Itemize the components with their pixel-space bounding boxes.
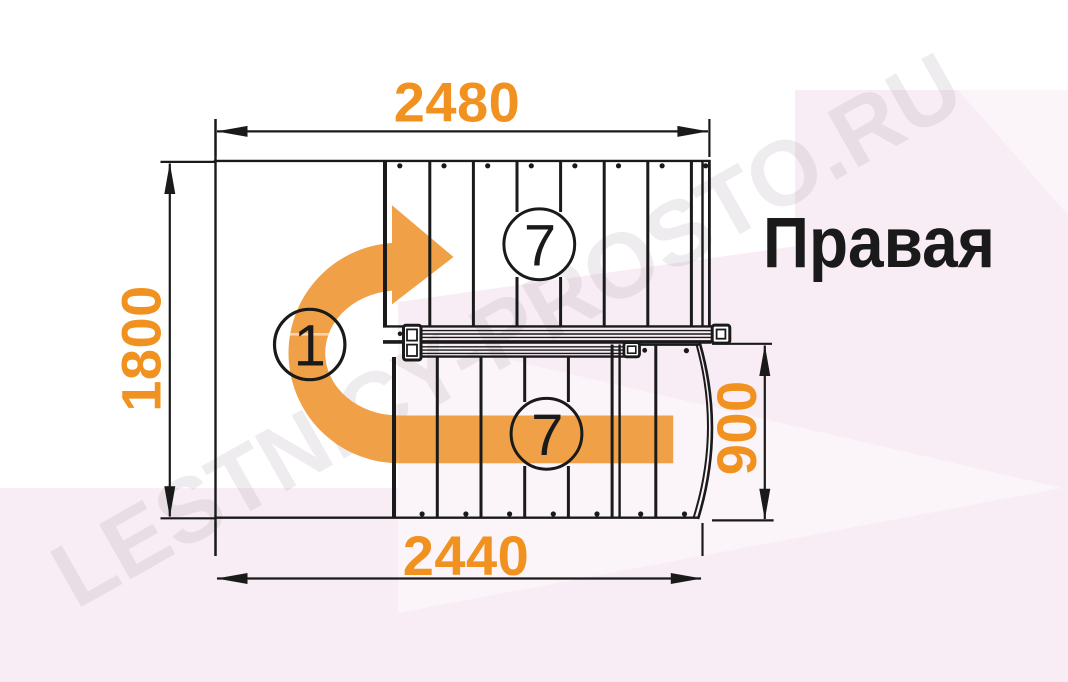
svg-text:1: 1 (294, 314, 326, 379)
svg-text:900: 900 (705, 380, 768, 475)
svg-text:1800: 1800 (110, 285, 173, 412)
svg-text:Правая: Правая (763, 204, 995, 283)
svg-text:2440: 2440 (403, 524, 530, 587)
svg-text:7: 7 (531, 403, 563, 468)
svg-text:2480: 2480 (394, 71, 521, 134)
svg-text:7: 7 (524, 213, 556, 278)
